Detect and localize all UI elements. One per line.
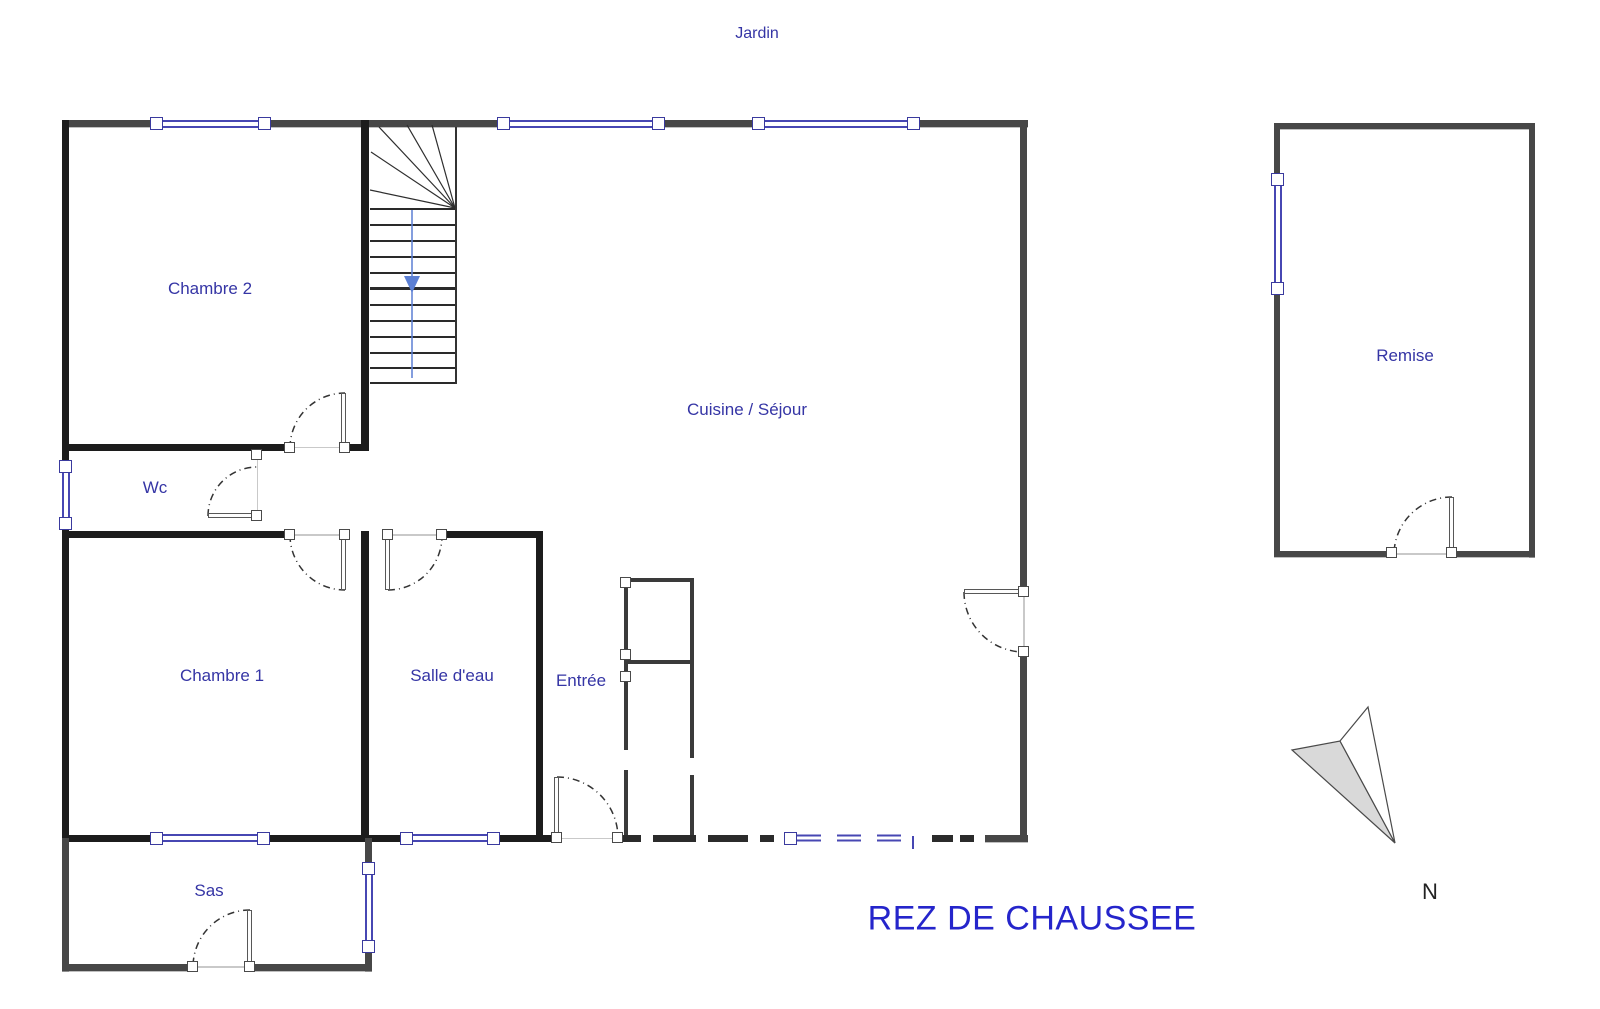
room-label-remise: Remise <box>1376 346 1434 366</box>
stair-right-edge <box>455 127 457 384</box>
door-threshold <box>557 838 618 840</box>
window-sas-right <box>365 868 373 946</box>
door-leaf-sas <box>247 910 252 965</box>
wall-right-exterior <box>1020 652 1027 838</box>
window-end-square <box>150 832 163 845</box>
window-remise-left <box>1274 179 1282 288</box>
window-end-square <box>362 862 375 875</box>
door-jamb-square <box>251 510 262 521</box>
door-leaf-cuisine <box>964 589 1022 594</box>
door-leaf-entree <box>554 777 559 836</box>
window-salledeau-bottom <box>406 834 493 842</box>
room-label-chambre2: Chambre 2 <box>168 279 252 299</box>
door-threshold <box>1392 553 1452 555</box>
wall-closet-left <box>624 770 628 838</box>
wall-chambre1-top <box>62 531 290 538</box>
door-arc-remise <box>1394 497 1452 553</box>
wall-left-exterior <box>62 523 69 838</box>
wall-closet-right <box>690 775 694 838</box>
stair-tread <box>370 336 456 338</box>
door-jamb-square <box>251 449 262 460</box>
door-jamb-square <box>339 442 350 453</box>
wall-right-exterior <box>1020 120 1027 592</box>
stair-tread <box>370 208 456 210</box>
page-title: REZ DE CHAUSSEE <box>868 900 1197 939</box>
window-end-square <box>59 517 72 530</box>
door-jamb-square <box>1386 547 1397 558</box>
window-end-square <box>652 117 665 130</box>
wall-bottom-exterior <box>270 835 400 842</box>
wall-left-exterior <box>62 120 69 466</box>
wall-sas-bottom <box>255 964 372 971</box>
wall-bottom-exterior <box>499 835 552 842</box>
closet-square <box>620 671 631 682</box>
window-end-square <box>59 460 72 473</box>
stair-tread <box>370 352 456 354</box>
door-threshold <box>1023 592 1025 652</box>
door-leaf-chambre1 <box>341 537 346 590</box>
door-jamb-square <box>339 529 350 540</box>
window-end-square <box>907 117 920 130</box>
window-end-square <box>362 940 375 953</box>
wall-salledeau-top <box>442 531 543 538</box>
wall-sas-left <box>62 838 69 971</box>
closet-square <box>620 577 631 588</box>
door-jamb-square <box>284 442 295 453</box>
window-chambre1-bottom <box>157 834 263 842</box>
window-end-square <box>400 832 413 845</box>
window-cuisine-top-2 <box>758 120 913 128</box>
room-label-cuisine-sejour: Cuisine / Séjour <box>687 400 807 420</box>
wall-remise-bottom <box>1274 551 1392 557</box>
stair-tread <box>370 382 456 384</box>
door-threshold <box>193 966 250 968</box>
stair-tread <box>370 287 456 290</box>
room-label-salledeau: Salle d'eau <box>410 666 494 686</box>
wall-remise-right <box>1529 123 1535 557</box>
door-jamb-square <box>551 832 562 843</box>
door-jamb-square <box>284 529 295 540</box>
wall-bottom-exterior <box>62 835 151 842</box>
door-jamb-square <box>1018 586 1029 597</box>
floorplan-canvas: Jardin Chambre 2 Wc Chambre 1 Salle d'ea… <box>0 0 1600 1009</box>
wall-sas-bottom <box>62 964 188 971</box>
stair-tread <box>370 320 456 322</box>
wall-bottom-exterior <box>985 835 1028 842</box>
window-end-square <box>487 832 500 845</box>
door-leaf-chambre2 <box>341 393 346 448</box>
stair-tread <box>370 367 456 369</box>
window-end-square <box>752 117 765 130</box>
closet-square <box>620 649 631 660</box>
wall-closet-right <box>690 578 694 758</box>
window-end-square <box>1271 282 1284 295</box>
floorplan-annotations <box>0 0 1600 1009</box>
stair-tread <box>370 304 456 306</box>
room-label-entree: Entrée <box>556 671 606 691</box>
wall-remise-left <box>1274 123 1280 173</box>
north-arrow-icon <box>1292 707 1395 843</box>
wall-chambre2-right <box>361 120 369 451</box>
wall-chambre1-salledeau-divider <box>361 531 369 838</box>
door-arc-cuisine <box>964 592 1024 652</box>
door-threshold <box>290 534 345 536</box>
north-label: N <box>1422 879 1438 905</box>
wall-sas-right <box>365 838 372 862</box>
door-jamb-square <box>612 832 623 843</box>
door-jamb-square <box>382 529 393 540</box>
door-jamb-square <box>244 961 255 972</box>
door-jamb-square <box>1446 547 1457 558</box>
window-bottom-dashed <box>797 836 913 841</box>
room-label-wc: Wc <box>143 478 168 498</box>
stair-tread <box>370 240 456 242</box>
door-jamb-square <box>1018 646 1029 657</box>
window-chambre2-top <box>157 120 264 128</box>
wall-salledeau-right <box>536 531 543 838</box>
garden-label: Jardin <box>735 25 779 43</box>
wall-remise-bottom <box>1452 551 1535 557</box>
window-end-square <box>784 832 797 845</box>
door-leaf-remise <box>1449 497 1454 551</box>
wall-sas-right <box>365 952 372 971</box>
door-jamb-square <box>436 529 447 540</box>
stair-tread <box>370 272 456 274</box>
door-leaf-wc <box>208 513 257 518</box>
door-arc-chambre1 <box>290 535 345 590</box>
door-threshold <box>257 455 259 516</box>
door-arc-sas <box>193 910 250 967</box>
door-arc-entree <box>557 777 618 838</box>
wall-closet-top <box>624 578 694 582</box>
door-swing-arcs <box>193 393 1452 967</box>
window-end-square <box>497 117 510 130</box>
wall-closet-divider <box>624 660 694 664</box>
door-jamb-square <box>187 961 198 972</box>
stair-direction-arrow <box>404 276 420 293</box>
wall-closet-left <box>624 578 628 650</box>
door-arc-chambre2 <box>290 393 345 448</box>
room-label-chambre1: Chambre 1 <box>180 666 264 686</box>
door-leaf-salledeau <box>385 537 390 590</box>
door-arc-wc <box>208 467 257 516</box>
window-end-square <box>257 832 270 845</box>
window-wc-left <box>62 466 70 523</box>
window-end-square <box>150 117 163 130</box>
stair-tread <box>370 224 456 226</box>
door-threshold <box>388 534 442 536</box>
wall-remise-top <box>1274 123 1535 129</box>
window-end-square <box>258 117 271 130</box>
stair-winder-fan <box>370 125 455 208</box>
room-label-sas: Sas <box>194 881 223 901</box>
window-cuisine-top-1 <box>503 120 658 128</box>
wall-remise-left <box>1274 294 1280 551</box>
window-end-square <box>1271 173 1284 186</box>
stair-tread <box>370 256 456 258</box>
door-threshold <box>290 447 345 449</box>
door-arc-salledeau <box>388 536 442 590</box>
